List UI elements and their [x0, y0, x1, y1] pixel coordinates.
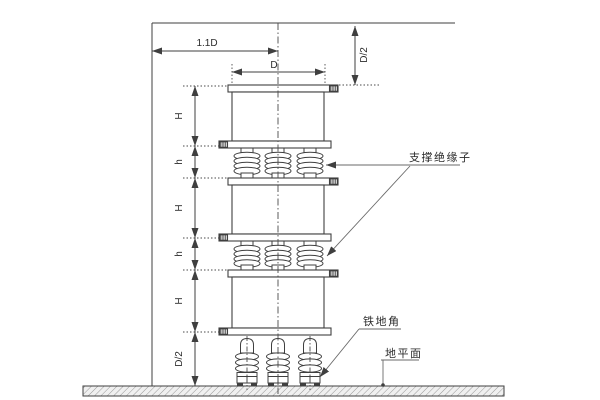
terminal-block-top [330, 271, 338, 277]
dim-top-width-label: 1.1D [196, 38, 217, 49]
support-insulator-label: 支撑绝缘子 [409, 150, 472, 164]
iron-foot [269, 383, 274, 386]
dim-chain-label: h [174, 159, 185, 165]
terminal-block-bottom [220, 329, 228, 335]
unit-1 [219, 85, 338, 148]
technical-drawing: 1.1D D D/2 H h H h H D/2 支撑绝缘子 [0, 0, 600, 400]
terminal-block-bottom [220, 142, 228, 148]
support-insulator [297, 148, 323, 178]
unit-bottom-plate [219, 141, 331, 148]
dim-chain-label: H [174, 204, 185, 211]
support-insulator [297, 241, 323, 270]
iron-foot [252, 383, 257, 386]
unit-top-plate [228, 85, 338, 92]
dim-chain-label: H [174, 297, 185, 304]
dim-chain-label: D/2 [174, 351, 185, 367]
unit-3 [219, 270, 338, 335]
unit-top-plate [228, 270, 338, 277]
terminal-block-bottom [220, 235, 228, 241]
dim-chain-label: H [174, 112, 185, 119]
terminal-block-top [330, 179, 338, 185]
ground-plane-strip [83, 386, 504, 396]
ground-plane-label: 地平面 [385, 347, 423, 360]
support-insulator [234, 241, 260, 270]
dim-chain-label: h [174, 251, 185, 257]
unit-2 [219, 178, 338, 241]
unit-bottom-plate [219, 328, 331, 335]
base-insulators [236, 339, 322, 387]
support-insulator-annotation: 支撑绝缘子 [326, 150, 472, 256]
iron-foot-annotation: 铁地角 [320, 315, 401, 377]
dim-top-width: 1.1D [152, 38, 278, 51]
insulator-row-1 [234, 148, 323, 178]
unit-bottom-plate [219, 234, 331, 241]
dim-unit-width-label: D [270, 60, 277, 71]
unit-top-plate [228, 178, 338, 185]
drawing-canvas: 1.1D D D/2 H h H h H D/2 支撑绝缘子 [0, 0, 600, 400]
dim-top-clearance-label: D/2 [359, 47, 370, 63]
insulator-row-2 [234, 241, 323, 270]
support-insulator [234, 148, 260, 178]
reactor-stack [219, 85, 338, 335]
ground-plane-annotation: 地平面 [381, 347, 423, 387]
iron-foot [283, 383, 288, 386]
iron-foot-label: 铁地角 [363, 315, 401, 328]
dim-unit-width: D [232, 60, 325, 72]
iron-foot [301, 383, 306, 386]
iron-foot [238, 383, 243, 386]
terminal-block-top [330, 86, 338, 92]
iron-foot [315, 383, 320, 386]
dim-chain: H h H h H D/2 [174, 86, 195, 386]
leader-dot [381, 383, 385, 387]
dim-top-clearance: D/2 [355, 26, 370, 85]
